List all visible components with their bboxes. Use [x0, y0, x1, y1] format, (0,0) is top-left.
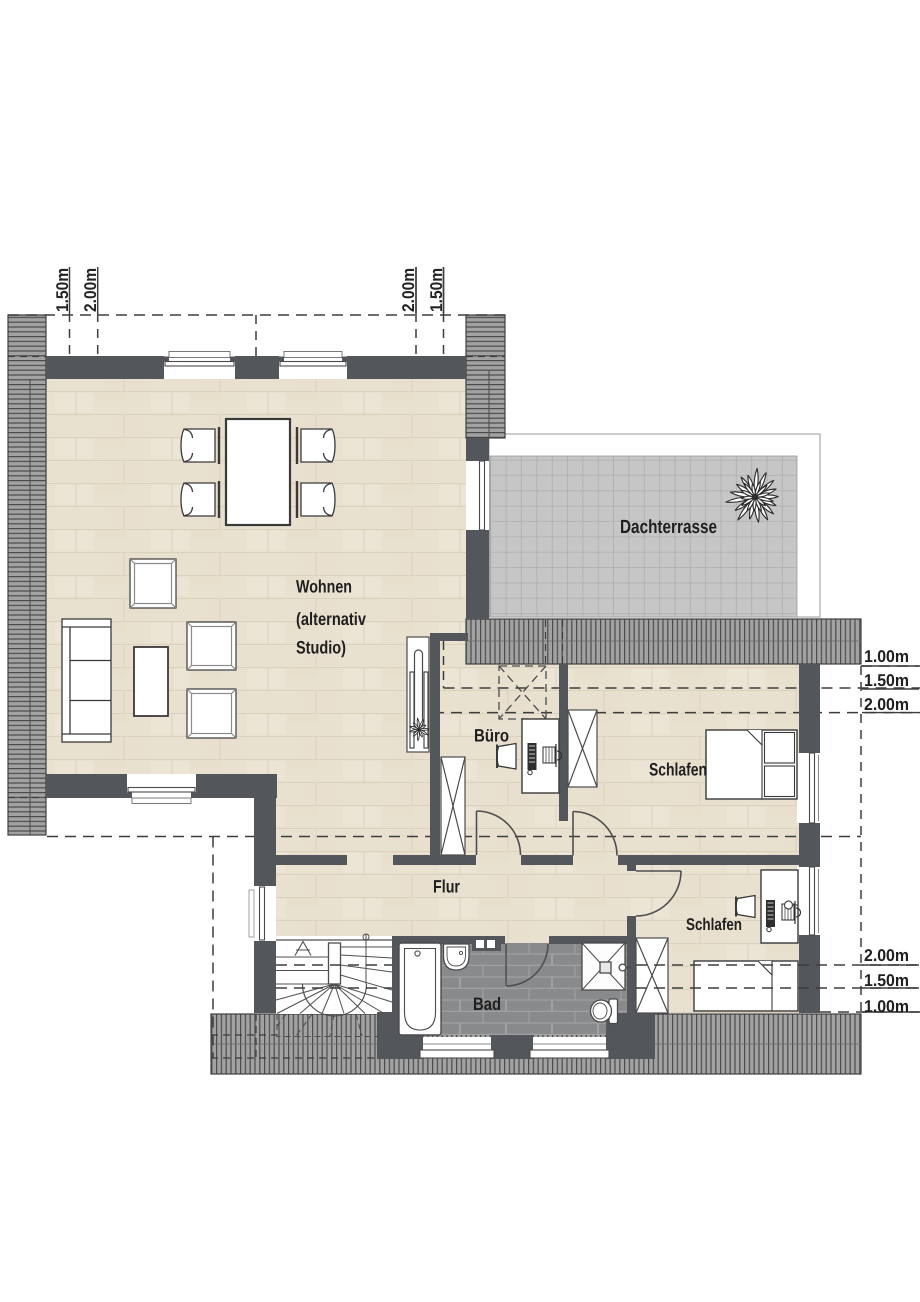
svg-text:(alternativ: (alternativ — [296, 609, 366, 629]
svg-text:1.00m: 1.00m — [864, 997, 909, 1016]
svg-text:2.00m: 2.00m — [81, 268, 100, 312]
svg-text:1.50m: 1.50m — [864, 971, 909, 990]
svg-text:Studio): Studio) — [296, 638, 346, 658]
svg-text:Wohnen: Wohnen — [296, 577, 352, 597]
svg-text:Flur: Flur — [433, 877, 460, 897]
svg-text:1.50m: 1.50m — [53, 268, 72, 312]
svg-text:2.00m: 2.00m — [864, 695, 909, 714]
svg-text:Dachterrasse: Dachterrasse — [620, 517, 717, 538]
svg-text:Büro: Büro — [474, 726, 509, 746]
svg-text:Schlafen: Schlafen — [686, 915, 742, 934]
svg-text:2.00m: 2.00m — [864, 946, 909, 965]
svg-text:1.00m: 1.00m — [864, 647, 909, 666]
svg-text:1.50m: 1.50m — [427, 268, 446, 312]
svg-text:2.00m: 2.00m — [399, 268, 418, 312]
svg-text:1.50m: 1.50m — [864, 671, 909, 690]
svg-text:Bad: Bad — [473, 994, 501, 1014]
svg-text:Schlafen: Schlafen — [649, 760, 707, 780]
